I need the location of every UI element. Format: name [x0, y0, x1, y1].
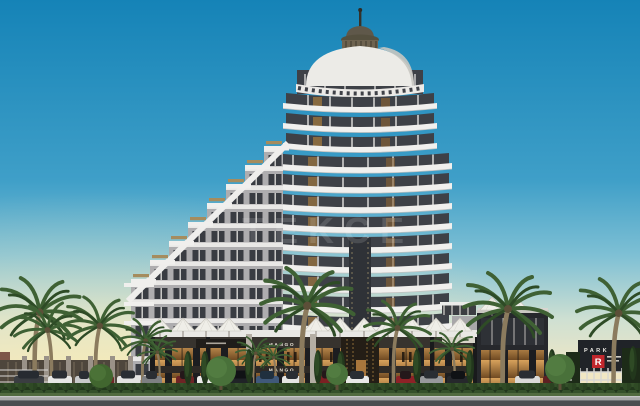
- gate-logo-letter: R: [595, 357, 602, 368]
- render-image: MANGO MANGO PARK R: [0, 0, 640, 406]
- street: [0, 393, 640, 406]
- watermark-text: TEKCE: [242, 210, 414, 251]
- scene: MANGO MANGO PARK R: [0, 0, 640, 406]
- gate-title-text: PARK: [584, 348, 609, 354]
